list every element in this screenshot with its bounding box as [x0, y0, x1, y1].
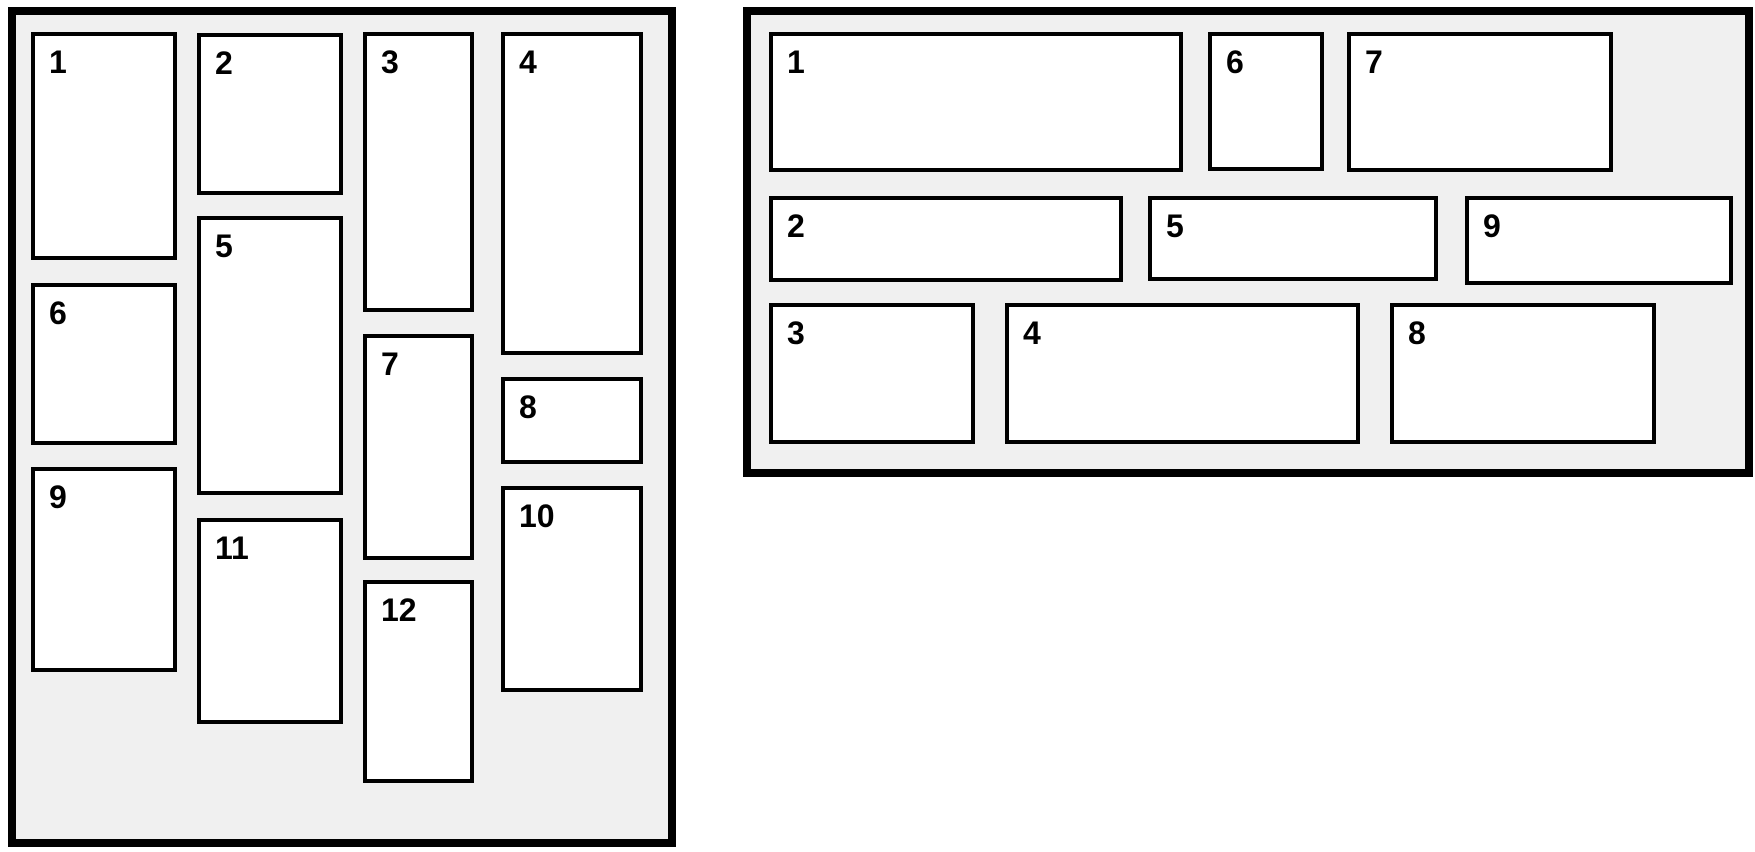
right-tile-5: 5: [1148, 196, 1438, 281]
right-tile-9: 9: [1465, 196, 1733, 285]
tile-number: 5: [201, 220, 339, 265]
tile-number: 7: [1351, 36, 1609, 81]
left-tile-7: 7: [363, 334, 474, 560]
tile-number: 2: [773, 200, 1119, 245]
left-tile-8: 8: [501, 377, 643, 464]
left-tile-6: 6: [31, 283, 177, 445]
tile-number: 9: [35, 471, 173, 516]
left-tile-12: 12: [363, 580, 474, 783]
tile-number: 5: [1152, 200, 1434, 245]
tile-number: 1: [773, 36, 1179, 81]
tile-number: 1: [35, 36, 173, 81]
left-tile-5: 5: [197, 216, 343, 495]
tile-number: 2: [201, 37, 339, 82]
tile-number: 4: [505, 36, 639, 81]
tile-number: 3: [773, 307, 971, 352]
tile-number: 3: [367, 36, 470, 81]
left-tile-4: 4: [501, 32, 643, 355]
right-tile-2: 2: [769, 196, 1123, 282]
tile-number: 7: [367, 338, 470, 383]
tile-number: 6: [35, 287, 173, 332]
tile-number: 12: [367, 584, 470, 629]
tile-number: 11: [201, 522, 339, 567]
right-tile-6: 6: [1208, 32, 1324, 171]
tile-number: 8: [1394, 307, 1652, 352]
tile-number: 8: [505, 381, 639, 426]
left-tile-3: 3: [363, 32, 474, 312]
left-tile-1: 1: [31, 32, 177, 260]
left-masonry-panel: 1 6 9 2 5 11 3 7 12 4 8 10: [8, 7, 676, 847]
right-tile-3: 3: [769, 303, 975, 444]
right-tile-7: 7: [1347, 32, 1613, 172]
right-masonry-panel: 1 6 7 2 5 9 3 4 8: [743, 7, 1753, 477]
tile-number: 10: [505, 490, 639, 535]
right-tile-8: 8: [1390, 303, 1656, 444]
left-tile-11: 11: [197, 518, 343, 724]
right-tile-1: 1: [769, 32, 1183, 172]
left-tile-10: 10: [501, 486, 643, 692]
tile-number: 9: [1469, 200, 1729, 245]
tile-number: 6: [1212, 36, 1320, 81]
right-tile-4: 4: [1005, 303, 1360, 444]
left-tile-2: 2: [197, 33, 343, 195]
left-tile-9: 9: [31, 467, 177, 672]
tile-number: 4: [1009, 307, 1356, 352]
